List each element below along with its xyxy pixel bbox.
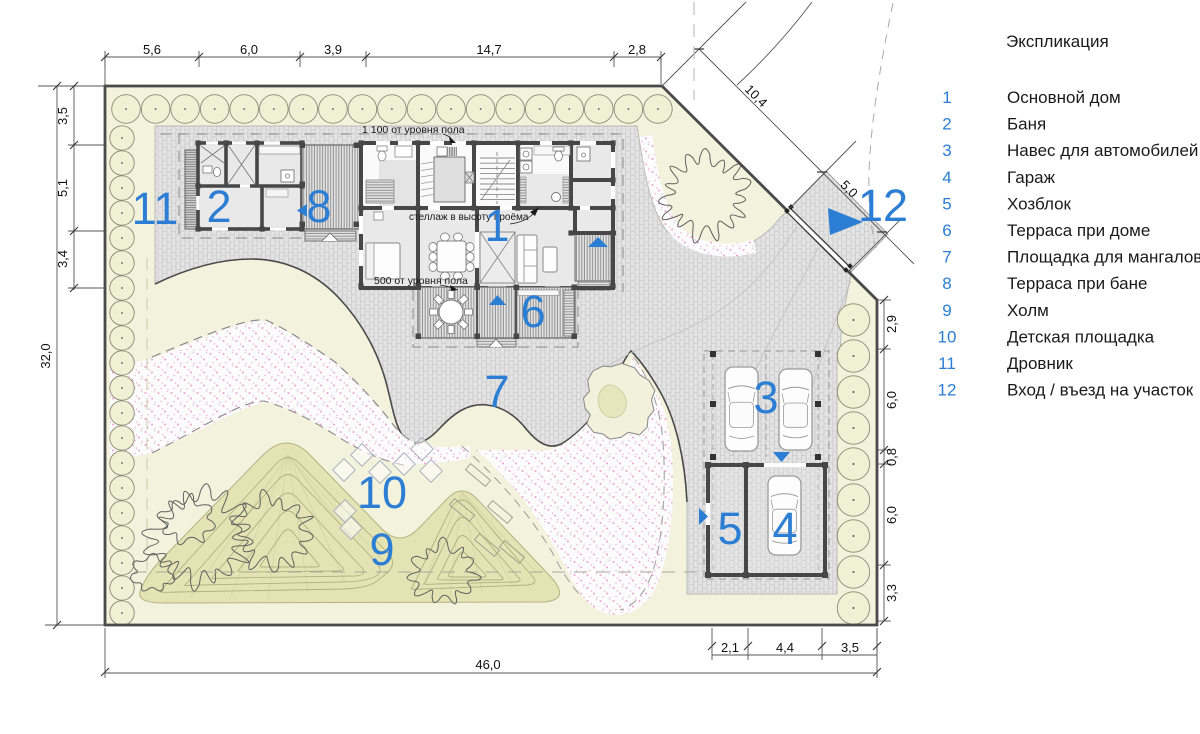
svg-text:6,0: 6,0	[240, 42, 258, 57]
svg-text:8: 8	[942, 274, 951, 293]
svg-text:Экспликация: Экспликация	[1006, 32, 1109, 51]
svg-text:0,8: 0,8	[884, 448, 899, 466]
svg-text:7: 7	[484, 366, 509, 417]
svg-text:11: 11	[132, 183, 179, 234]
svg-text:4: 4	[942, 168, 951, 187]
svg-text:Гараж: Гараж	[1007, 168, 1056, 187]
svg-text:7: 7	[942, 248, 951, 267]
svg-text:4: 4	[772, 503, 797, 554]
svg-text:3,5: 3,5	[841, 640, 859, 655]
svg-text:3,9: 3,9	[324, 42, 342, 57]
svg-text:12: 12	[858, 180, 908, 231]
svg-text:14,7: 14,7	[476, 42, 501, 57]
svg-text:Площадка для мангалов: Площадка для мангалов	[1007, 248, 1200, 267]
svg-text:3,3: 3,3	[884, 584, 899, 602]
svg-text:46,0: 46,0	[475, 657, 500, 672]
svg-text:5,6: 5,6	[143, 42, 161, 57]
svg-text:стеллаж в высоту проёма: стеллаж в высоту проёма	[409, 212, 529, 223]
svg-text:Вход / въезд на участок: Вход / въезд на участок	[1007, 381, 1194, 400]
svg-text:Дровник: Дровник	[1007, 354, 1073, 373]
svg-text:6,0: 6,0	[884, 506, 899, 524]
svg-text:5: 5	[717, 503, 742, 554]
svg-text:2,1: 2,1	[721, 640, 739, 655]
svg-text:2,8: 2,8	[628, 42, 646, 57]
svg-text:1: 1	[942, 88, 951, 107]
svg-text:6,0: 6,0	[884, 391, 899, 409]
svg-text:1: 1	[484, 200, 509, 251]
svg-text:3,4: 3,4	[55, 250, 70, 268]
svg-text:3: 3	[942, 141, 951, 160]
svg-text:Терраса при доме: Терраса при доме	[1007, 221, 1150, 240]
svg-text:1 100 от уровня пола: 1 100 от уровня пола	[362, 124, 465, 136]
svg-text:9: 9	[369, 524, 394, 575]
svg-text:32,0: 32,0	[38, 343, 53, 368]
svg-text:Холм: Холм	[1007, 301, 1049, 320]
svg-text:Детская площадка: Детская площадка	[1007, 327, 1155, 346]
svg-text:Основной дом: Основной дом	[1007, 88, 1121, 107]
svg-text:3: 3	[753, 372, 778, 423]
svg-text:2: 2	[942, 115, 951, 134]
svg-text:10,4: 10,4	[742, 82, 771, 111]
svg-text:4,4: 4,4	[776, 640, 794, 655]
svg-text:Хозблок: Хозблок	[1007, 194, 1072, 213]
svg-text:5: 5	[942, 194, 951, 213]
svg-text:5,1: 5,1	[55, 179, 70, 197]
svg-text:2: 2	[206, 181, 231, 232]
svg-text:2,9: 2,9	[884, 315, 899, 333]
svg-text:Терраса при бане: Терраса при бане	[1007, 274, 1147, 293]
svg-text:11: 11	[938, 354, 956, 373]
svg-text:3,5: 3,5	[55, 107, 70, 125]
svg-text:9: 9	[942, 301, 951, 320]
svg-text:10: 10	[357, 467, 407, 518]
svg-text:Баня: Баня	[1007, 115, 1046, 134]
svg-text:500 от уровня пола: 500 от уровня пола	[374, 275, 468, 287]
svg-text:12: 12	[938, 381, 957, 400]
svg-text:6: 6	[520, 286, 545, 337]
svg-text:8: 8	[306, 181, 331, 232]
svg-text:Навес для автомобилей: Навес для автомобилей	[1007, 141, 1198, 160]
svg-text:10: 10	[938, 327, 957, 346]
svg-text:6: 6	[942, 221, 951, 240]
